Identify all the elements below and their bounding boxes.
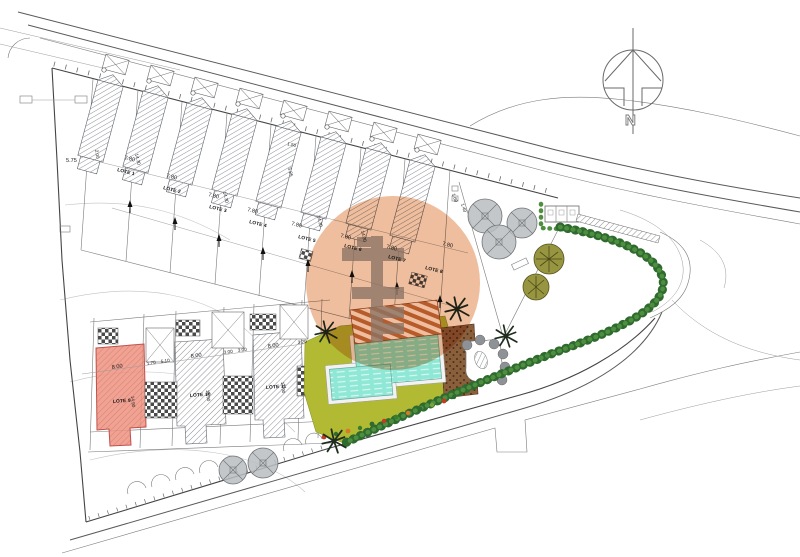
svg-text:7.80: 7.80 (291, 221, 303, 229)
svg-text:1.40: 1.40 (460, 203, 468, 213)
north-label: N (625, 112, 636, 129)
highlighted-lot-9[interactable] (96, 344, 146, 446)
rowhouse-5 (252, 100, 308, 221)
bench (511, 258, 528, 270)
svg-text:3.00: 3.00 (223, 349, 233, 355)
north-arrow: N (603, 28, 663, 134)
site-plan-canvas: 7.80 7.80 7.80 7.80 7.80 7.80 7.80 7.80 … (0, 0, 800, 557)
svg-text:7.80: 7.80 (166, 173, 178, 181)
site-plan-drawing: 7.80 7.80 7.80 7.80 7.80 7.80 7.80 7.80 … (0, 0, 800, 557)
rowhouse-4 (208, 88, 264, 209)
road-top (0, 12, 800, 224)
rowhouse-2 (119, 65, 175, 186)
svg-text:LOTE 9: LOTE 9 (113, 398, 131, 405)
svg-text:7.80: 7.80 (208, 192, 220, 200)
svg-text:1.70: 1.70 (146, 360, 156, 366)
svg-text:LOTE 4: LOTE 4 (249, 219, 268, 229)
svg-text:LOTE 5: LOTE 5 (298, 234, 317, 244)
svg-text:3.00: 3.00 (237, 347, 247, 353)
rowhouse-1 (74, 54, 130, 175)
svg-text:5.10: 5.10 (160, 358, 170, 364)
svg-text:7.80: 7.80 (247, 207, 259, 215)
svg-text:5.75: 5.75 (66, 158, 77, 164)
orange-highlight-circle[interactable] (306, 196, 480, 370)
olive-trees (523, 244, 564, 300)
